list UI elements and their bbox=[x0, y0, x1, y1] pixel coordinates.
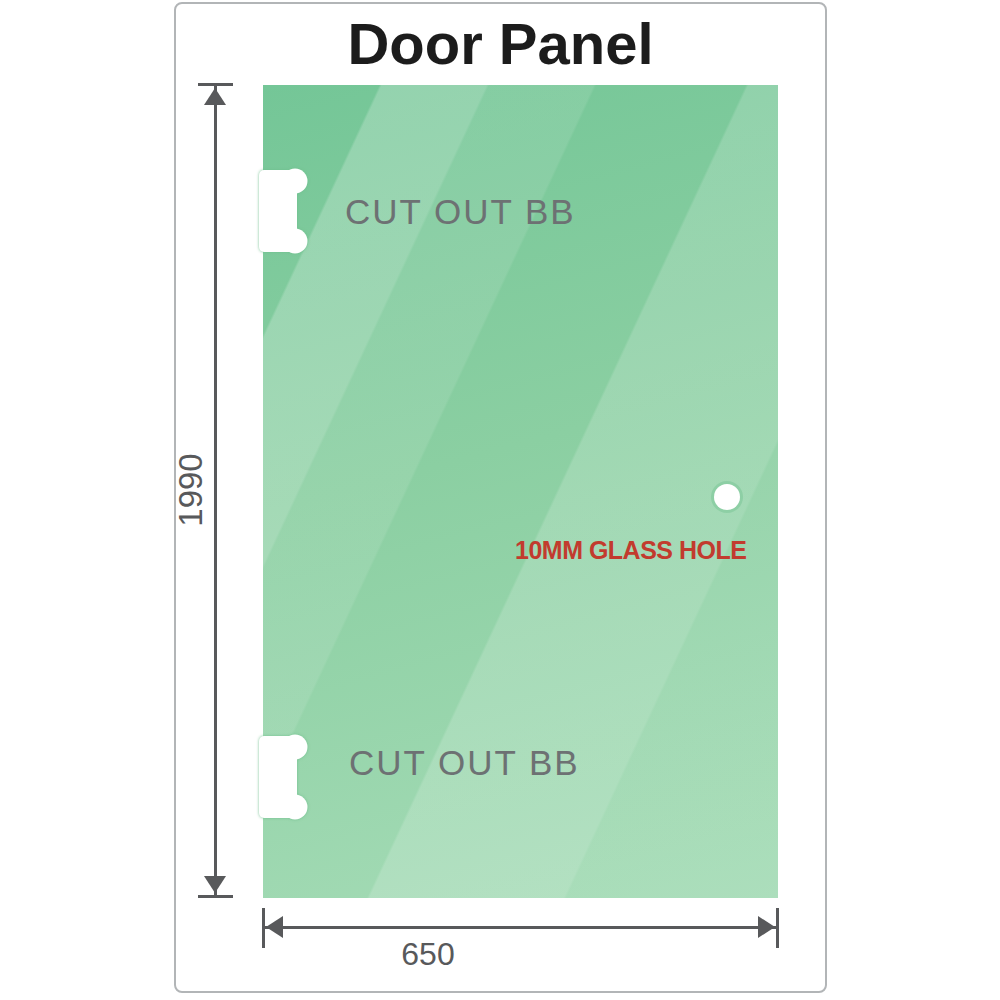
glass-hole bbox=[714, 484, 740, 510]
hinge-cutout-bottom bbox=[259, 733, 311, 821]
width-dim-line bbox=[264, 926, 777, 929]
height-dim-cap-bottom bbox=[198, 895, 233, 898]
glass-hole-label: 10MM GLASS HOLE bbox=[515, 536, 746, 565]
cutout-top-label: CUT OUT BB bbox=[345, 192, 576, 232]
door-panel-diagram: Door Panel CUT OUT BB CUT OUT BB 10MM GL… bbox=[0, 0, 1000, 1000]
arrow-left-icon bbox=[266, 916, 283, 938]
height-dim-label: 1990 bbox=[171, 430, 211, 550]
arrow-down-icon bbox=[204, 876, 226, 893]
glass-panel: CUT OUT BB CUT OUT BB 10MM GLASS HOLE bbox=[263, 85, 778, 898]
hinge-cutout-top bbox=[259, 167, 311, 255]
width-dim-cap-right bbox=[776, 908, 779, 948]
arrow-up-icon bbox=[204, 88, 226, 105]
cutout-bottom-label: CUT OUT BB bbox=[349, 743, 580, 783]
width-dim-label: 650 bbox=[390, 936, 466, 973]
height-dim-line bbox=[214, 85, 217, 897]
arrow-right-icon bbox=[758, 916, 775, 938]
diagram-title: Door Panel bbox=[174, 10, 827, 77]
